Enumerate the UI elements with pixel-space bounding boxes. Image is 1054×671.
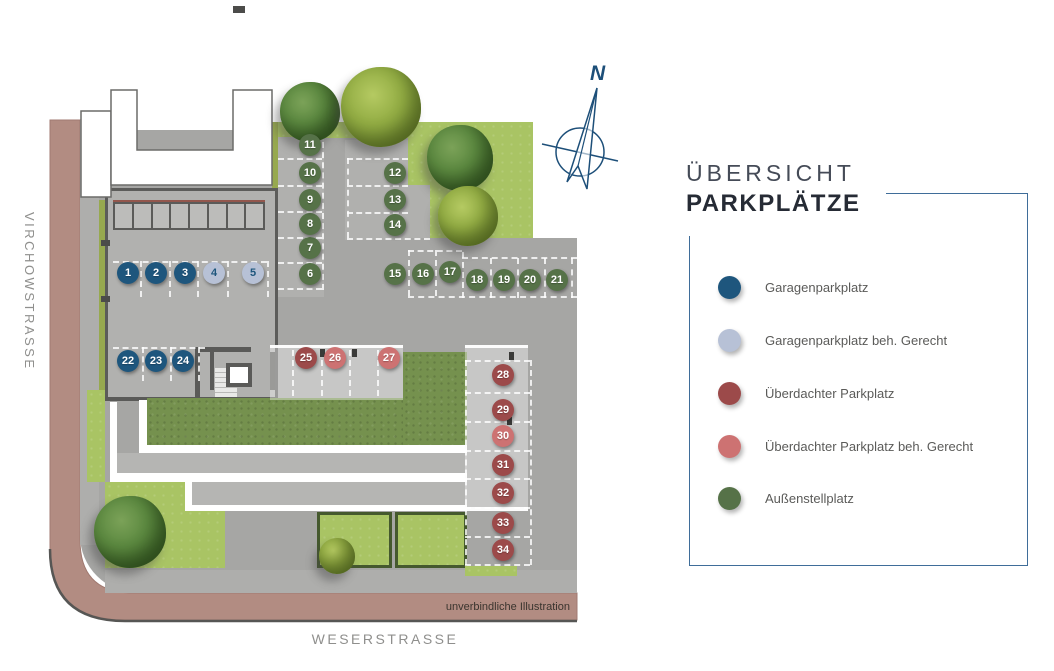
- parking-spot-27: 27: [378, 347, 400, 369]
- parking-spot-10: 10: [299, 162, 321, 184]
- stall-marking-line: [347, 158, 408, 160]
- stall-marking-line: [292, 350, 294, 396]
- parking-spot-34: 34: [492, 539, 514, 561]
- stall-marking-line: [465, 421, 530, 423]
- parking-spot-4: 4: [203, 262, 225, 284]
- parking-spot-9: 9: [299, 189, 321, 211]
- terrace-walk-2: [192, 482, 467, 505]
- parking-spot-11: 11: [299, 134, 321, 156]
- legend-item-garage: Garagenparkplatz: [718, 276, 868, 299]
- stall-marking-line: [435, 250, 437, 296]
- parking-spot-28: 28: [492, 364, 514, 386]
- tree-1: [280, 82, 340, 142]
- parking-spot-25: 25: [295, 347, 317, 369]
- stall-marking-line: [462, 252, 464, 298]
- terrace-walk-1: [117, 453, 467, 473]
- garage-stall-cell: [228, 204, 247, 228]
- stall-marking-line: [465, 564, 530, 566]
- stall-marking-line: [198, 347, 200, 381]
- parking-spot-33: 33: [492, 512, 514, 534]
- parking-spot-14: 14: [384, 214, 406, 236]
- stall-marking-line: [347, 158, 349, 238]
- stall-marking-line: [571, 258, 573, 298]
- stall-marking-line: [465, 536, 530, 538]
- stall-marking-line: [465, 360, 530, 362]
- parking-spot-15: 15: [384, 263, 406, 285]
- stall-marking-line: [278, 158, 322, 160]
- legend-label-covered: Überdachter Parkplatz: [765, 386, 894, 401]
- parking-spot-2: 2: [145, 262, 167, 284]
- garage-stall-cell: [190, 204, 209, 228]
- stall-marking-line: [227, 261, 229, 297]
- parking-spot-7: 7: [299, 237, 321, 259]
- legend-dot-covered: [718, 382, 741, 405]
- parking-spot-18: 18: [466, 269, 488, 291]
- garage-stall-cell: [115, 204, 134, 228]
- garage-stall-cell: [134, 204, 153, 228]
- parking-spot-12: 12: [384, 162, 406, 184]
- stall-marking-line: [278, 288, 322, 290]
- parking-spot-26: 26: [324, 347, 346, 369]
- garage-stall-cell: [209, 204, 228, 228]
- stall-marking-line: [267, 261, 269, 297]
- legend-dot-covered_beh: [718, 435, 741, 458]
- legend-label-covered_beh: Überdachter Parkplatz beh. Gerecht: [765, 439, 973, 454]
- garage-stall-cell: [171, 204, 190, 228]
- stall-marking-line: [465, 507, 530, 509]
- terrace-frame-a-bottom: [139, 445, 467, 453]
- terrace-frame-b-left: [110, 402, 117, 482]
- parking-spot-6: 6: [299, 263, 321, 285]
- stall-marking-line: [465, 478, 530, 480]
- stall-marking-line: [113, 347, 205, 349]
- title-line-2: PARKPLÄTZE: [686, 190, 861, 218]
- canopy-post: [509, 352, 514, 360]
- parking-spot-22: 22: [117, 350, 139, 372]
- street-label-virchowstrasse: VIRCHOWSTRASSE: [22, 212, 37, 382]
- legend-item-outdoor: Außenstellplatz: [718, 487, 854, 510]
- compass: N: [540, 52, 635, 202]
- parking-spot-16: 16: [412, 263, 434, 285]
- garage-roof-redline: [113, 200, 265, 202]
- courtyard-garden-east: [403, 352, 467, 445]
- parking-spot-31: 31: [492, 454, 514, 476]
- lawn-west-strip: [87, 390, 105, 482]
- stall-marking-line: [169, 261, 171, 297]
- parking-spot-32: 32: [492, 482, 514, 504]
- stall-marking-line: [465, 450, 530, 452]
- garage-stall-cell: [153, 204, 172, 228]
- parking-spot-24: 24: [172, 350, 194, 372]
- legend-dot-garage_beh: [718, 329, 741, 352]
- terrace-frame-b-bottom: [110, 473, 467, 482]
- legend-dot-outdoor: [718, 487, 741, 510]
- parking-spot-20: 20: [519, 269, 541, 291]
- legend-label-garage: Garagenparkplatz: [765, 280, 868, 295]
- lawn-southeast-strip: [465, 566, 517, 576]
- legend-item-covered: Überdachter Parkplatz: [718, 382, 894, 405]
- stall-marking-line: [140, 261, 142, 297]
- parking-spot-3: 3: [174, 262, 196, 284]
- elevator-shaft: [226, 363, 252, 387]
- parking-spot-1: 1: [117, 262, 139, 284]
- parking-spot-13: 13: [384, 189, 406, 211]
- stall-marking-line: [530, 360, 532, 565]
- parking-spot-19: 19: [493, 269, 515, 291]
- garage-stall-row: [113, 202, 265, 230]
- stall-marking-line: [142, 347, 144, 381]
- stall-marking-line: [278, 185, 322, 187]
- stall-marking-line: [408, 250, 410, 296]
- tree-3: [427, 125, 493, 191]
- legend-label-garage_beh: Garagenparkplatz beh. Gerecht: [765, 333, 947, 348]
- legend-item-garage_beh: Garagenparkplatz beh. Gerecht: [718, 329, 947, 352]
- legend-box: GaragenparkplatzGaragenparkplatz beh. Ge…: [689, 193, 1028, 566]
- stall14-notch: [408, 185, 430, 238]
- parking-spot-23: 23: [145, 350, 167, 372]
- page-title: ÜBERSICHT PARKPLÄTZE: [686, 160, 861, 218]
- stall-marking-line: [322, 142, 324, 290]
- terrace-frame-c-bottom: [185, 505, 467, 511]
- stall-marking-line: [347, 212, 408, 214]
- legend-dot-garage: [718, 276, 741, 299]
- compass-n-label: N: [590, 62, 606, 85]
- parking-spot-8: 8: [299, 213, 321, 235]
- stall-marking-line: [465, 360, 467, 565]
- stall-marking-line: [465, 392, 530, 394]
- tree-4: [438, 186, 498, 246]
- canopy-post: [352, 349, 357, 357]
- parking-spot-21: 21: [546, 269, 568, 291]
- garden-patch-2: [395, 512, 467, 568]
- stall-marking-line: [347, 238, 430, 240]
- street-label-weserstrasse: WESERSTRASSE: [295, 631, 475, 647]
- stall-marking-line: [462, 257, 577, 259]
- parking-spot-29: 29: [492, 399, 514, 421]
- legend-label-outdoor: Außenstellplatz: [765, 491, 854, 506]
- stairwell-wall-mid: [210, 352, 214, 390]
- title-line-1: ÜBERSICHT: [686, 160, 861, 187]
- parking-spot-30: 30: [492, 425, 514, 447]
- tree-2: [341, 67, 421, 147]
- tree-5: [94, 496, 166, 568]
- stall-marking-line: [349, 350, 351, 396]
- parking-spot-5: 5: [242, 262, 264, 284]
- garage-stall-cell: [246, 204, 263, 228]
- stall-marking-line: [408, 296, 577, 298]
- site-plan: N VIRCHOWSTRASSE WESERSTRASSE unverbindl…: [0, 0, 660, 671]
- stall-marking-line: [278, 211, 322, 213]
- stall-marking-line: [490, 258, 492, 298]
- parking-spot-17: 17: [439, 261, 461, 283]
- tree-6: [319, 538, 355, 574]
- legend-item-covered_beh: Überdachter Parkplatz beh. Gerecht: [718, 435, 973, 458]
- courtyard-garden-west: [147, 398, 403, 445]
- stall-marking-line: [197, 261, 199, 297]
- stall-marking-line: [347, 185, 408, 187]
- disclaimer-text: unverbindliche Illustration: [430, 601, 570, 613]
